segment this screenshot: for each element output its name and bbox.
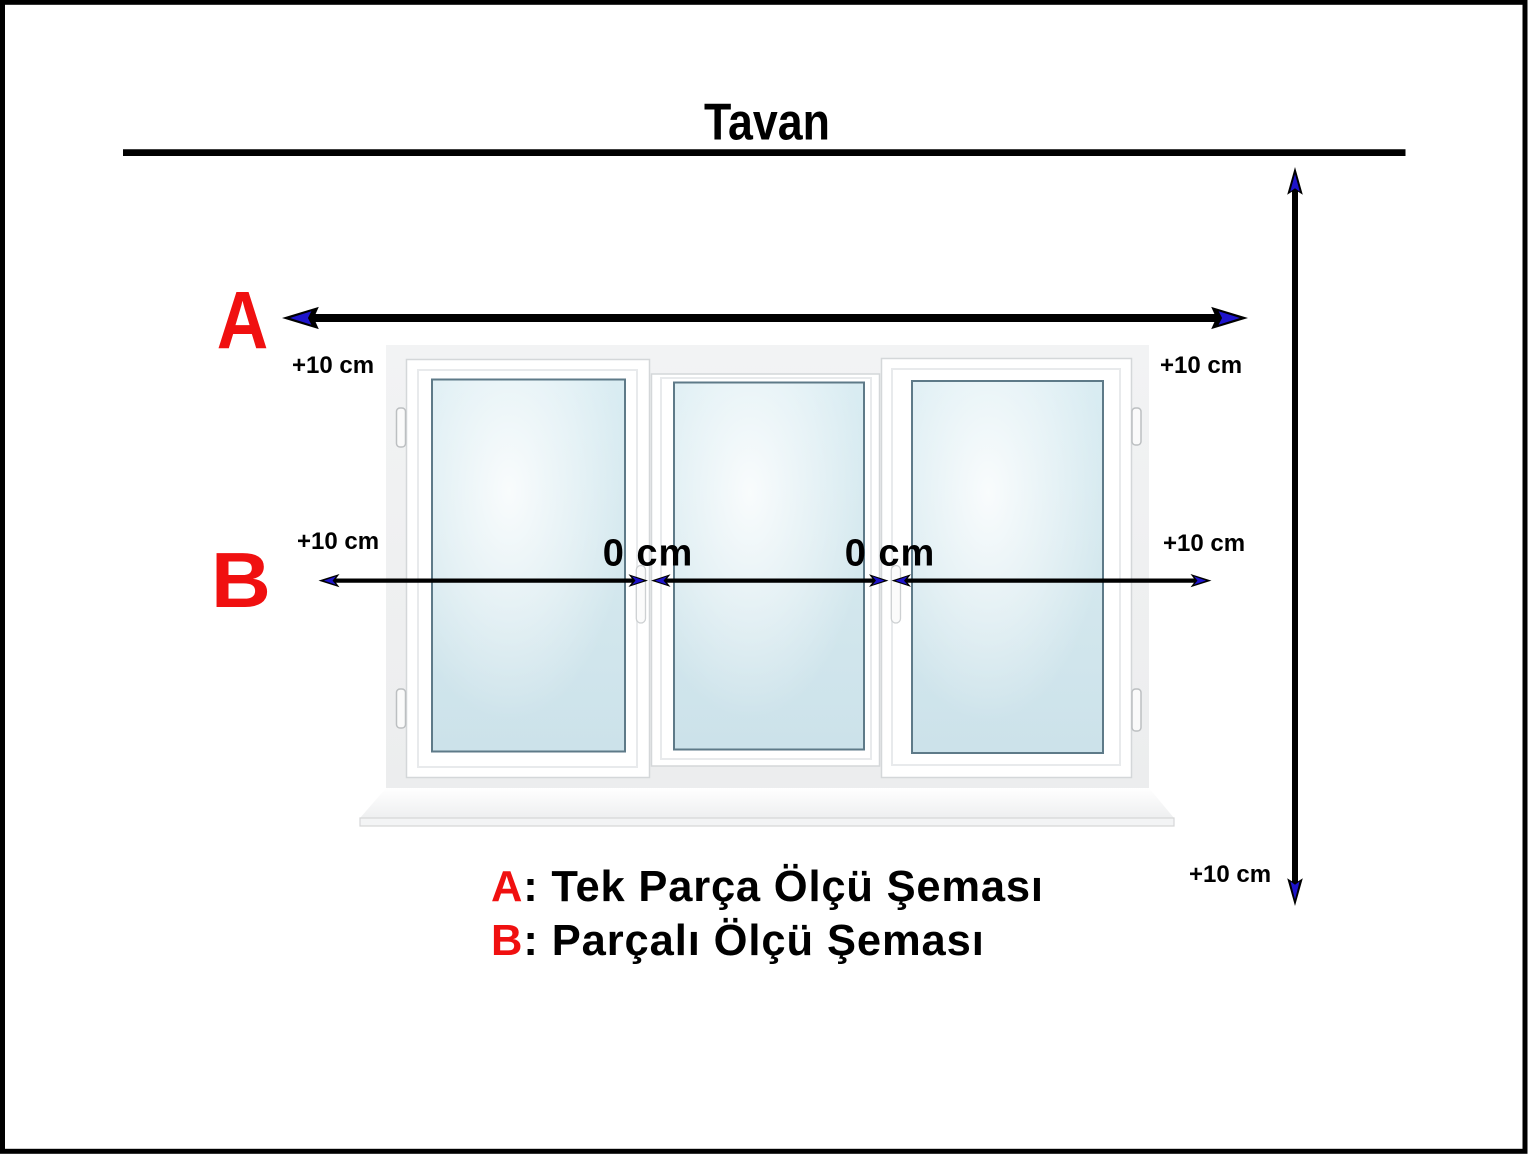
svg-text:+10 cm: +10 cm (1163, 530, 1245, 557)
svg-text:B: Parçalı Ölçü Şeması: B: Parçalı Ölçü Şeması (491, 916, 985, 965)
svg-text:0 cm: 0 cm (845, 533, 936, 575)
svg-text:A: A (217, 275, 269, 367)
svg-text:B: B (211, 537, 271, 624)
svg-text:+10 cm: +10 cm (292, 352, 374, 379)
svg-text:+10 cm: +10 cm (297, 528, 379, 555)
svg-text:A: Tek Parça Ölçü Şeması: A: Tek Parça Ölçü Şeması (491, 862, 1044, 911)
svg-text:+10 cm: +10 cm (1160, 352, 1242, 379)
svg-text:0 cm: 0 cm (603, 533, 694, 575)
svg-text:Tavan: Tavan (704, 93, 830, 151)
svg-text:+10 cm: +10 cm (1189, 861, 1271, 888)
